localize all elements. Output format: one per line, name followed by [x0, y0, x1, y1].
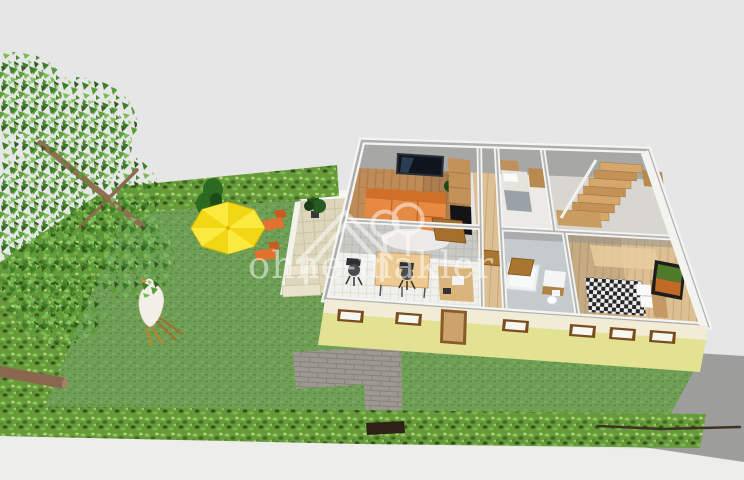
garden-gate	[366, 421, 405, 435]
open-door	[432, 218, 466, 243]
window	[502, 319, 529, 333]
wall-tv	[396, 153, 444, 177]
floorplan-render-canvas: ohne-makler	[0, 0, 744, 480]
window	[569, 324, 596, 338]
open-door	[508, 258, 534, 276]
watermark-text: ohne-makler	[248, 244, 494, 287]
window	[395, 312, 422, 326]
window	[609, 327, 636, 341]
entry-door	[440, 309, 467, 345]
window	[337, 309, 364, 323]
window	[649, 330, 676, 344]
scene-svg: ohne-makler	[0, 0, 744, 480]
bedroom-rug	[590, 245, 660, 270]
